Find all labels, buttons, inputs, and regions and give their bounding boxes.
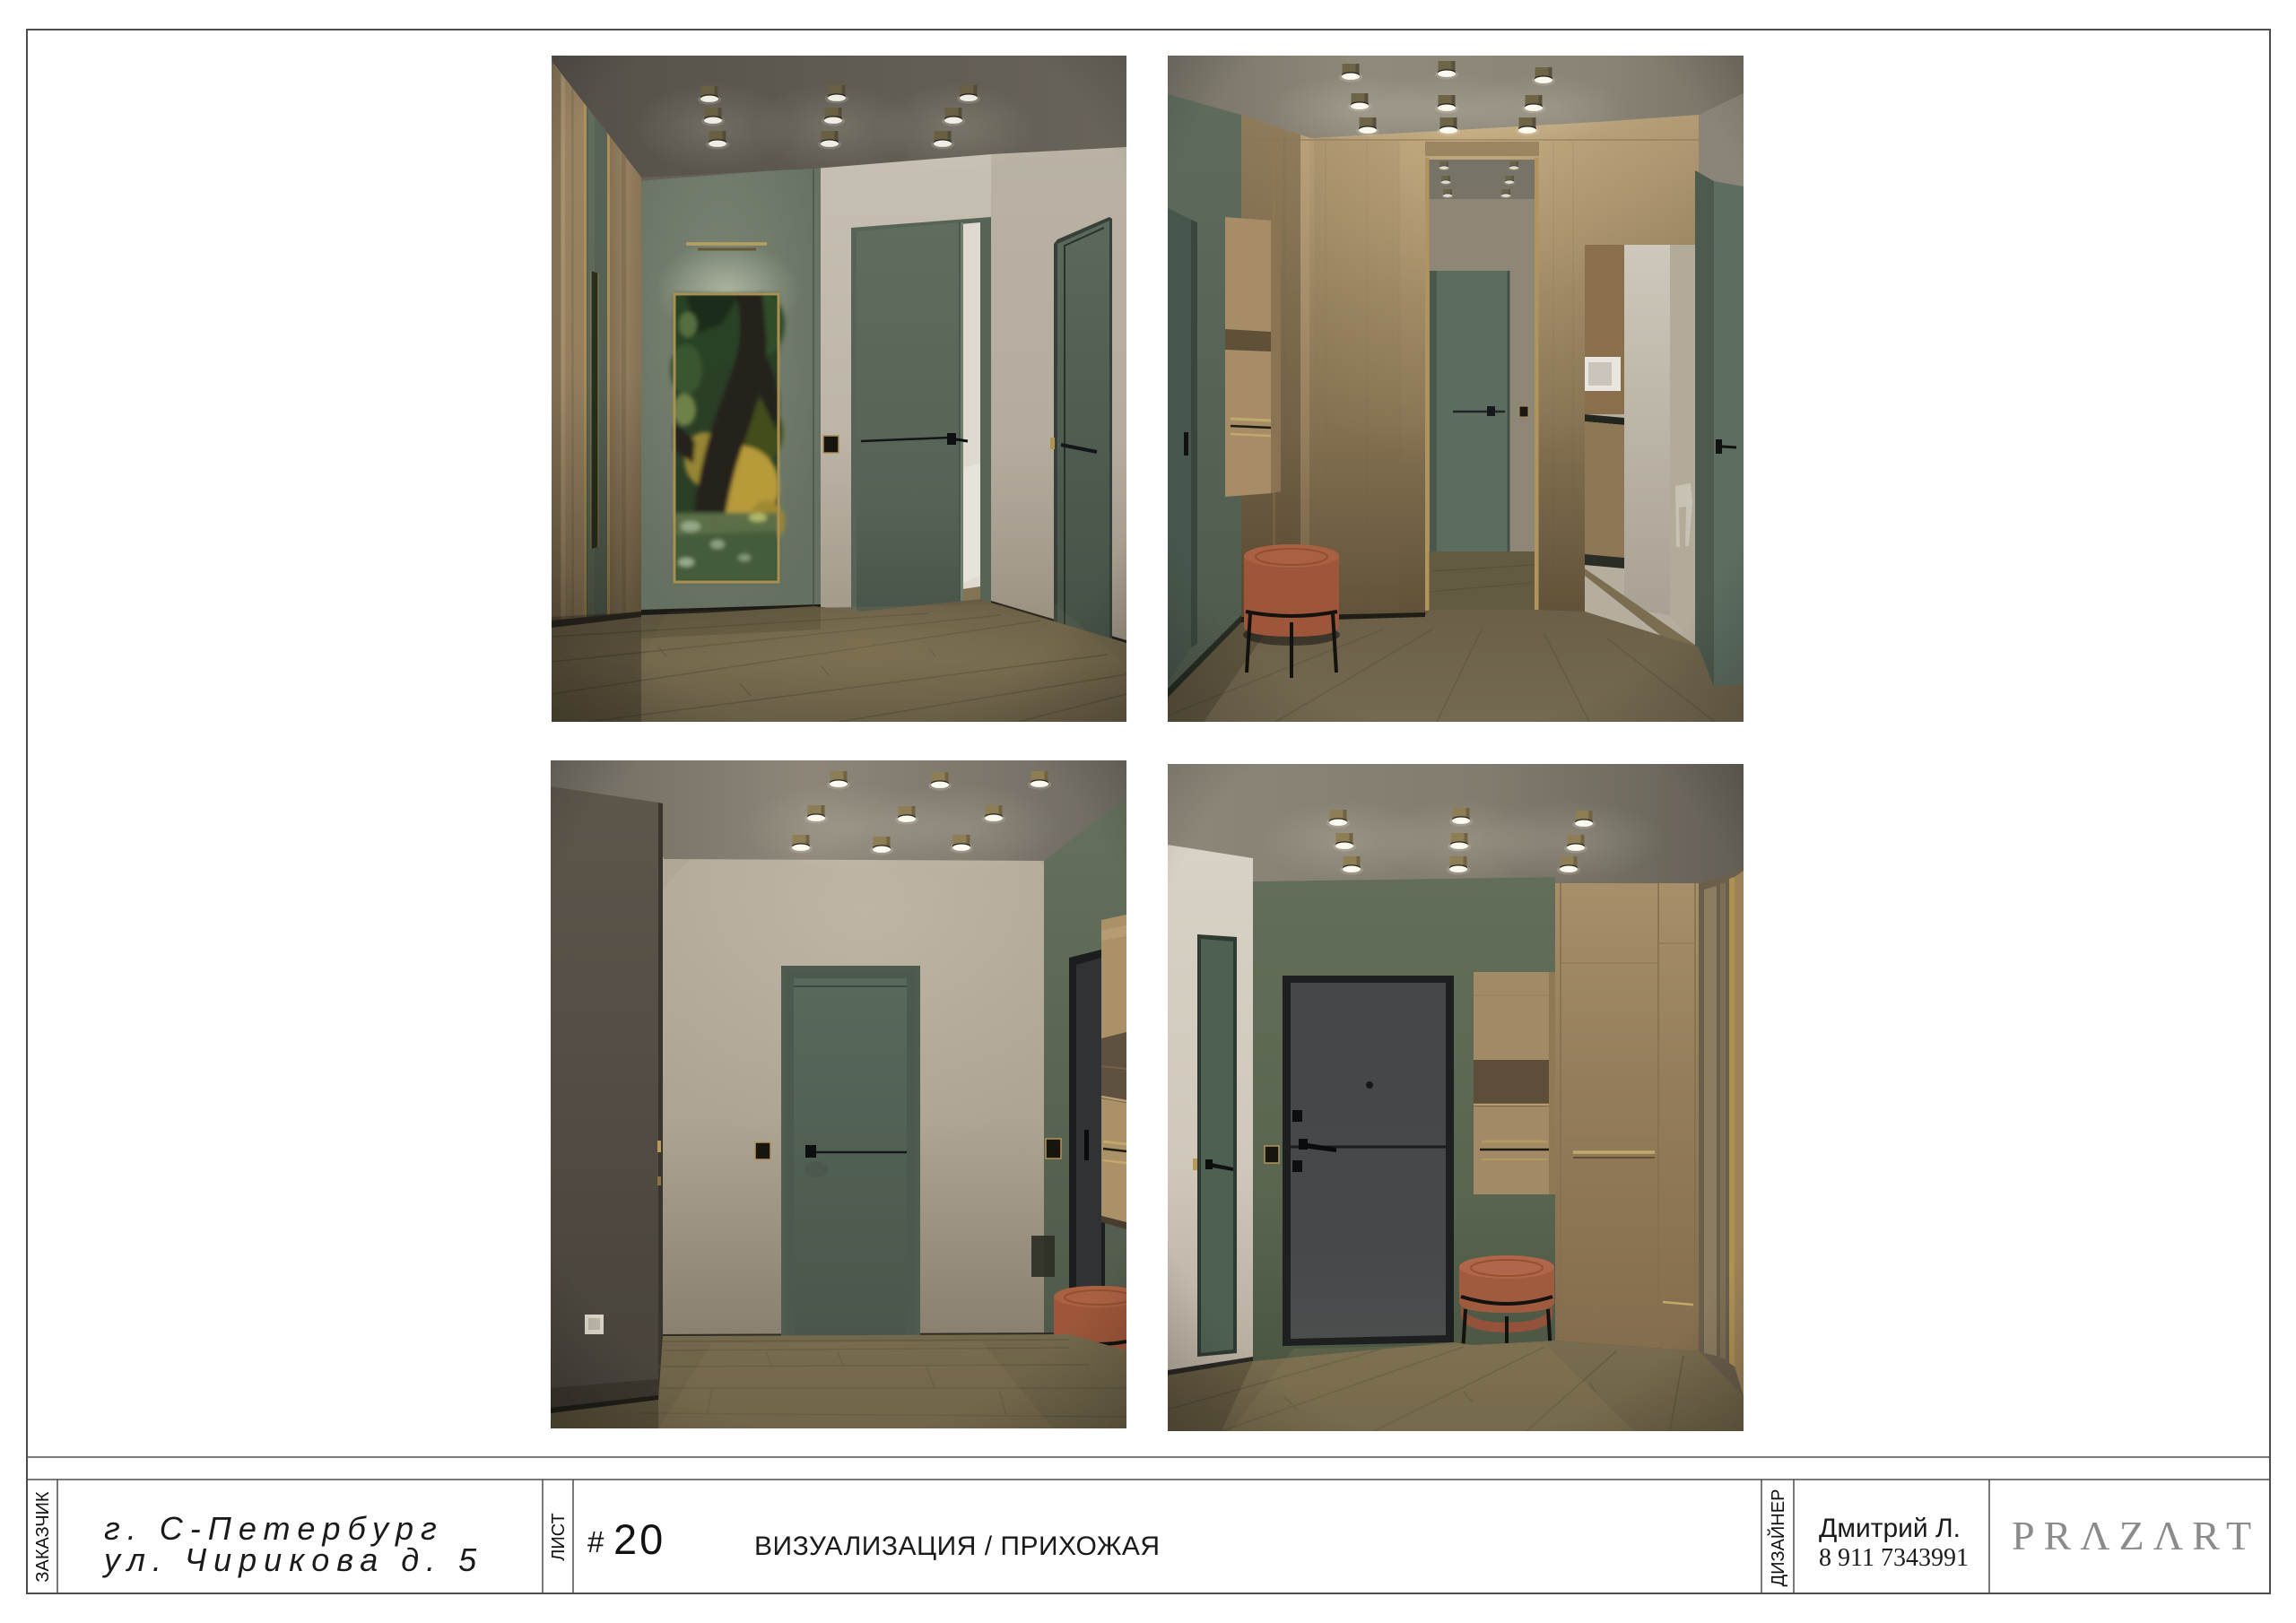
svg-text:ул. Чирикова д. 5: ул. Чирикова д. 5 [101, 1541, 483, 1578]
svg-text:ДИЗАЙНЕР: ДИЗАЙНЕР [1767, 1489, 1788, 1587]
svg-text:#: # [587, 1525, 604, 1558]
svg-text:8 911 7343991: 8 911 7343991 [1819, 1544, 1969, 1572]
svg-text:Дмитрий Л.: Дмитрий Л. [1819, 1514, 1961, 1543]
svg-text:ЛИСТ: ЛИСТ [549, 1513, 569, 1561]
svg-text:ВИЗУАЛИЗАЦИЯ / ПРИХОЖАЯ: ВИЗУАЛИЗАЦИЯ / ПРИХОЖАЯ [754, 1532, 1161, 1561]
svg-text:ЗАКАЗЧИК: ЗАКАЗЧИК [33, 1491, 53, 1583]
svg-text:20: 20 [613, 1515, 665, 1563]
svg-text:PRΛZΛRT: PRΛZΛRT [2012, 1513, 2260, 1558]
